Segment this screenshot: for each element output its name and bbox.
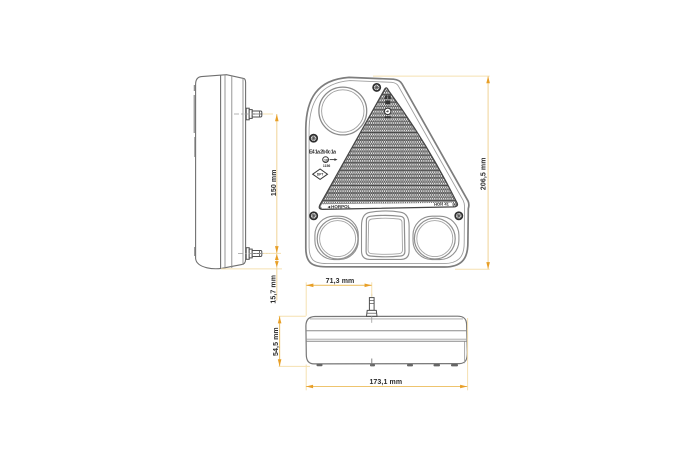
svg-text:173,1 mm: 173,1 mm <box>369 379 402 386</box>
svg-text:15,7 mm: 15,7 mm <box>270 275 277 304</box>
svg-text:54,5 mm: 54,5 mm <box>273 327 280 356</box>
svg-text:206,5 mm: 206,5 mm <box>481 157 488 190</box>
svg-text:10: 10 <box>324 158 328 162</box>
svg-text:1156: 1156 <box>323 164 330 168</box>
svg-text:E4 1a 2b 0c 1a: E4 1a 2b 0c 1a <box>309 149 336 155</box>
svg-text:71,3 mm: 71,3 mm <box>326 278 355 285</box>
svg-text:◄HORPOL: ◄HORPOL <box>327 204 351 209</box>
svg-text:HOR 41: HOR 41 <box>434 201 450 206</box>
svg-text:150 mm: 150 mm <box>271 169 278 196</box>
svg-text:DPT: DPT <box>317 173 323 177</box>
